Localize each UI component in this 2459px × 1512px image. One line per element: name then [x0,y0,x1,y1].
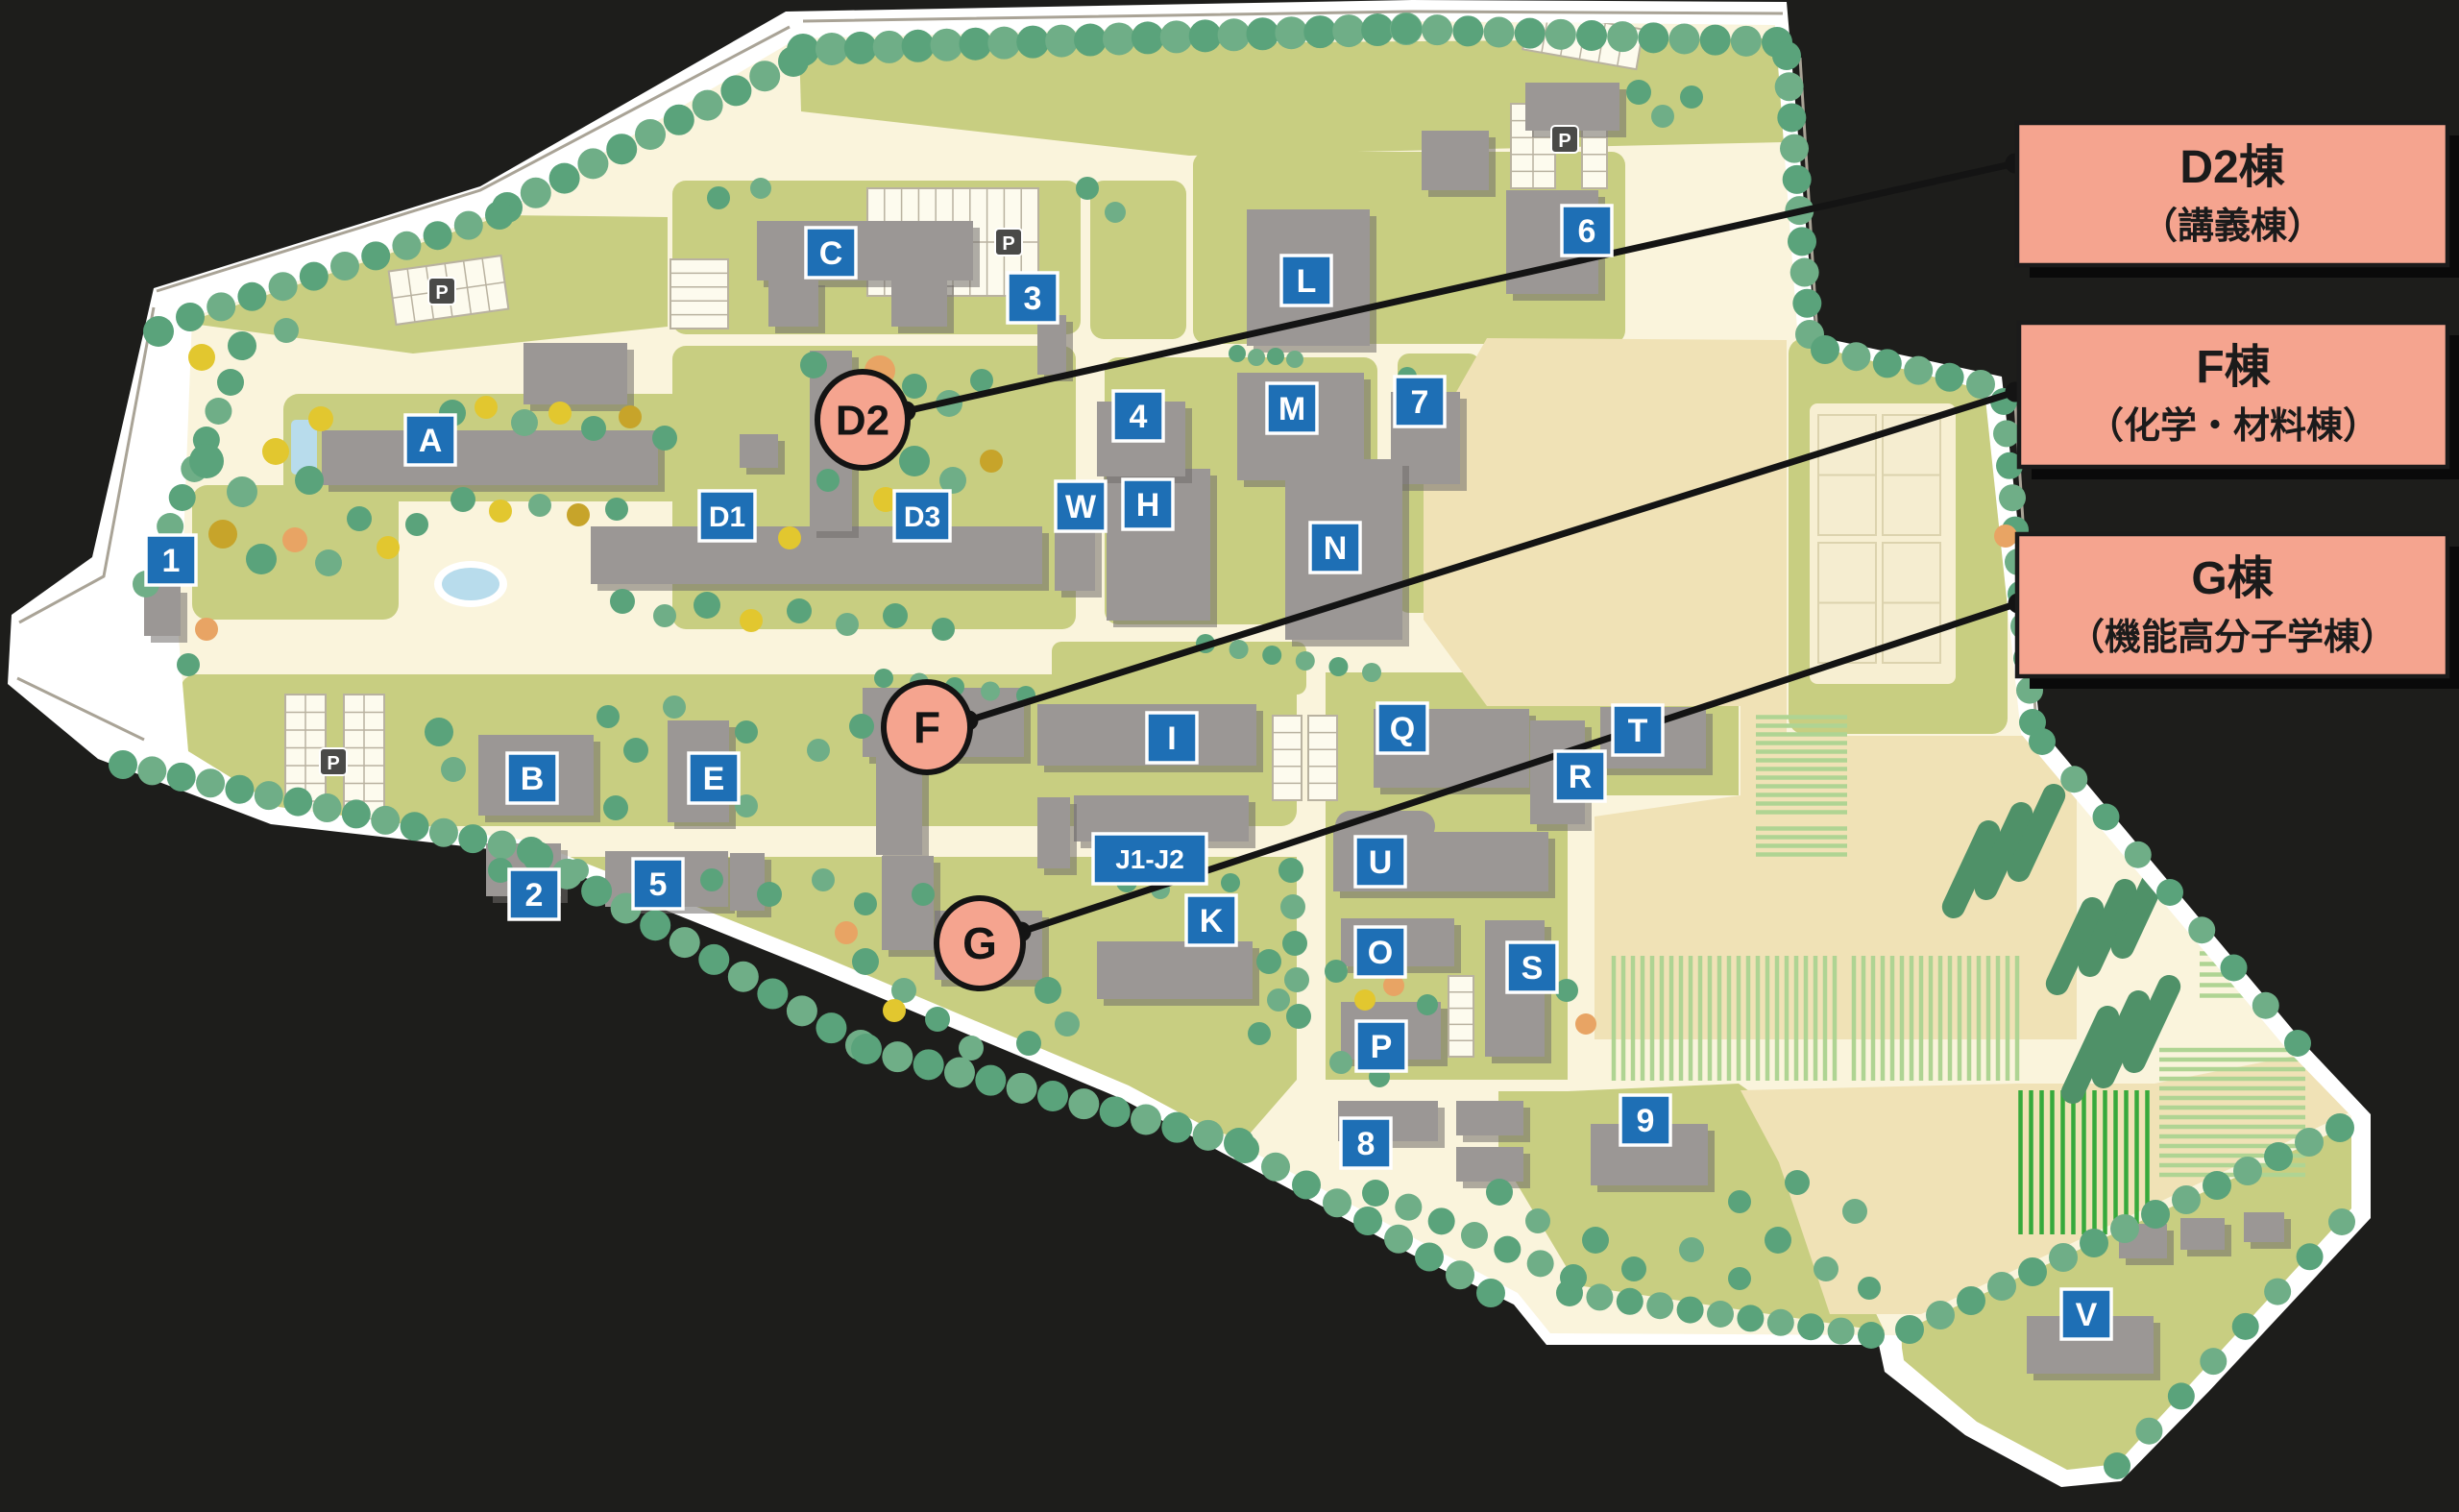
tree-icon [283,788,312,817]
tree-icon [1731,26,1762,57]
tree-icon [1353,1207,1382,1235]
building-badge-H[interactable]: H [1123,479,1173,529]
building-badge-1[interactable]: 1 [146,535,196,585]
tree-icon [1161,1112,1192,1143]
building-badge-P[interactable]: P [1356,1021,1406,1071]
building [1097,941,1253,999]
tree-icon [1074,24,1107,57]
tree-icon [2110,1214,2139,1243]
tree-icon [1037,1081,1068,1111]
building-badge-V[interactable]: V [2061,1289,2111,1339]
tree-icon [2221,955,2248,982]
tree-icon [1797,1313,1824,1340]
badge-label: C [819,235,843,272]
building-badge-U[interactable]: U [1355,837,1405,887]
tree-icon [707,186,730,209]
tree-icon [485,201,514,230]
tree-icon [1229,640,1249,659]
tree-icon [458,824,487,853]
building [757,221,973,280]
tree-icon [581,416,606,441]
parking-p-icon: P [320,748,347,775]
building-badge-O[interactable]: O [1355,927,1405,977]
tree-icon [169,484,196,511]
building-badge-D1[interactable]: D1 [699,491,755,541]
tree-icon [1646,1292,1673,1319]
tree-icon [450,487,475,512]
tree-icon [205,398,231,425]
tree-icon [1728,1190,1751,1213]
tree-icon [2029,728,2056,755]
building-badge-9[interactable]: 9 [1620,1095,1670,1145]
tree-icon [1707,1301,1734,1328]
tree-icon [1841,342,1870,371]
callout-title: D2棟 [2179,142,2285,193]
tree-icon [1100,1096,1131,1127]
marker-label: G [962,918,997,968]
tree-icon [1132,21,1164,54]
tree-icon [1292,1171,1321,1200]
tree-icon [2264,1142,2293,1171]
tree-icon [787,598,812,623]
tree-icon [425,718,453,746]
tree-icon [1651,105,1674,128]
parking-p-icon: P [1551,126,1578,153]
tree-icon [1994,524,2017,548]
tree-icon [392,232,421,260]
tree-icon [1484,17,1515,48]
tree-icon [567,503,590,526]
callout-title: G棟 [2191,553,2274,604]
tree-icon [1332,14,1365,47]
building-badge-C[interactable]: C [806,228,856,278]
tree-icon [1415,1243,1444,1272]
tree-icon [1842,1199,1867,1224]
tree-icon [429,818,458,847]
building-badge-2[interactable]: 2 [509,869,559,919]
tree-icon [1586,1283,1613,1310]
tree-icon [653,604,676,627]
tree-icon [1045,25,1078,58]
building-badge-T[interactable]: T [1613,705,1663,755]
tree-icon [361,241,390,270]
tree-icon [670,927,700,958]
badge-label: L [1297,263,1317,300]
tree-icon [899,446,930,476]
tree-icon [521,178,551,208]
tree-icon [2080,1229,2108,1257]
building-badge-S[interactable]: S [1507,942,1557,992]
tree-icon [1105,202,1126,223]
building [1456,1101,1523,1135]
map-canvas: PPPPD2FG123456789ABCD1D3EHIJ1-J2KLMNOPQR… [0,0,2459,1512]
building-badge-7[interactable]: 7 [1395,377,1445,427]
building-badge-J1-J2[interactable]: J1-J2 [1093,834,1206,884]
tree-icon [1783,165,1812,194]
tree-icon [1765,1227,1791,1254]
tree-icon [401,812,429,841]
tree-icon [176,303,205,331]
tree-icon [2252,992,2279,1019]
tree-icon [1494,1236,1521,1263]
tree-icon [488,831,517,860]
tree-icon [852,948,879,975]
tree-icon [902,30,935,62]
tree-icon [1525,1208,1550,1233]
tree-icon [1256,949,1281,974]
tree-icon [1785,1170,1810,1195]
tree-icon [1582,1227,1609,1254]
tree-icon [1417,994,1438,1015]
tree-icon [778,526,801,549]
tree-icon [816,469,840,492]
tree-icon [851,1034,882,1064]
tree-icon [237,282,266,311]
tree-icon [1737,1305,1764,1331]
tree-icon [424,221,452,250]
tree-icon [2093,804,2120,831]
tree-icon [577,148,608,179]
badge-label: A [419,423,443,459]
tree-icon [1428,1207,1455,1234]
badge-label: B [521,761,545,797]
tree-icon [757,979,788,1010]
tree-icon [1303,15,1336,48]
tree-icon [227,476,257,507]
tree-icon [1728,1267,1751,1290]
tree-icon [1323,1188,1351,1217]
badge-label: 9 [1637,1103,1655,1139]
tree-icon [208,520,237,549]
building [1037,797,1070,868]
building-badge-3[interactable]: 3 [1008,273,1058,323]
tree-icon [912,883,935,906]
tree-icon [1895,1315,1924,1344]
tree-icon [735,720,758,744]
tree-icon [566,859,589,882]
building-badge-E[interactable]: E [689,753,739,803]
callout-f[interactable]: F棟（化学・材料棟） [2019,323,2459,479]
tree-icon [1621,1256,1646,1281]
badge-label: H [1136,487,1160,524]
tree-icon [441,757,466,782]
building [768,279,818,327]
building-badge-L[interactable]: L [1281,256,1331,305]
tree-icon [1576,20,1607,51]
badge-label: S [1522,950,1544,987]
tree-icon [2156,879,2183,906]
tree-icon [849,714,874,739]
building-badge-I[interactable]: I [1147,713,1197,763]
tree-icon [2172,1185,2201,1214]
building-badge-4[interactable]: 4 [1113,391,1163,441]
building-badge-D3[interactable]: D3 [894,491,950,541]
tree-icon [1218,18,1251,51]
building-badge-N[interactable]: N [1310,523,1360,573]
tree-icon [1384,1225,1413,1254]
tree-icon [664,105,694,135]
tree-icon [694,592,720,619]
tree-icon [1957,1286,1985,1315]
tree-icon [693,90,723,121]
tree-icon [274,318,299,343]
marker-label: F [913,702,940,752]
building-badge-A[interactable]: A [405,415,455,465]
tree-icon [1936,363,1964,392]
tree-icon [1248,349,1265,366]
tree-icon [1422,14,1452,45]
tree-icon [1160,20,1193,53]
tree-icon [932,618,955,641]
badge-label: 2 [525,877,544,914]
tree-icon [1395,1194,1422,1221]
tree-icon [757,882,782,907]
marker-circle-F[interactable]: F [884,682,970,772]
tree-icon [1103,22,1135,55]
callout-subtitle: （機能高分子学棟） [2068,617,2397,658]
tree-icon [959,1036,984,1061]
tree-icon [1391,13,1422,44]
tree-icon [313,793,342,822]
svg-text:P: P [1002,233,1014,255]
tree-icon [1772,41,1801,70]
badge-label: I [1167,720,1176,757]
tree-icon [1858,1322,1885,1349]
marker-circle-G[interactable]: G [937,898,1023,988]
tree-icon [1527,1250,1554,1277]
tree-icon [883,603,908,628]
badge-label: 8 [1357,1126,1376,1162]
tree-icon [188,344,215,371]
tree-icon [1193,1120,1224,1151]
tree-icon [1275,16,1307,49]
badge-label: D1 [709,501,745,533]
tree-icon [511,409,538,436]
building [1525,83,1619,131]
tree-icon [873,31,906,63]
tree-icon [1007,1073,1037,1104]
tree-icon [1999,484,2026,511]
tree-icon [1286,351,1303,368]
badge-label: W [1065,489,1097,525]
tree-icon [1229,345,1246,362]
badge-label: 5 [649,866,668,903]
tree-icon [1788,227,1816,256]
tree-icon [1361,13,1394,46]
tree-icon [1904,356,1933,385]
tree-icon [981,682,1000,701]
tree-icon [137,756,166,785]
tree-icon [2060,766,2087,793]
tree-icon [902,374,927,399]
tree-icon [1767,1309,1794,1336]
tree-icon [1780,134,1809,163]
tree-icon [925,1007,950,1032]
svg-text:P: P [1558,131,1570,152]
badge-label: 3 [1024,280,1042,317]
tree-icon [217,369,244,396]
tree-icon [663,695,686,719]
tree-icon [1677,1297,1704,1324]
building-badge-5[interactable]: 5 [633,859,683,909]
tree-icon [1131,1105,1161,1135]
tree-icon [246,544,277,574]
tree-icon [1261,1153,1290,1182]
tree-icon [2232,1313,2259,1340]
tree-icon [1248,1022,1271,1045]
tree-icon [750,178,771,199]
tree-icon [2233,1157,2262,1185]
tree-icon [1262,646,1281,665]
building [1055,524,1095,591]
callout-d2[interactable]: D2棟（講義棟） [2017,123,2459,278]
tree-icon [1560,1264,1587,1291]
tree-icon [1607,21,1638,52]
tree-icon [835,921,858,944]
marker-circle-D2[interactable]: D2 [817,372,908,468]
tree-icon [720,75,751,106]
tree-icon [228,331,256,360]
badge-label: 7 [1411,384,1429,421]
svg-text:P: P [327,753,339,774]
tree-icon [1775,72,1804,101]
tree-icon [2049,1243,2078,1272]
callout-title: F棟 [2196,342,2271,393]
tree-icon [255,781,283,810]
tree-icon [1966,370,1995,399]
tree-icon [1679,1237,1704,1262]
tree-icon [1076,177,1099,200]
tree-icon [2168,1382,2195,1409]
badge-label: U [1369,844,1393,881]
tree-icon [778,46,809,77]
tree-icon [282,527,307,552]
tree-icon [1328,657,1348,676]
building [730,853,765,911]
tree-icon [883,999,906,1022]
tree-icon [1700,25,1731,56]
building-badge-6[interactable]: 6 [1562,206,1612,256]
tree-icon [623,738,648,763]
tree-icon [2188,916,2215,943]
tree-icon [844,32,877,64]
tree-icon [1055,1012,1080,1036]
tree-icon [619,405,642,428]
tree-icon [581,876,612,907]
building-badge-M[interactable]: M [1267,383,1317,433]
building-badge-B[interactable]: B [507,753,557,803]
building-badge-K[interactable]: K [1186,895,1236,945]
tree-icon [1446,1260,1474,1289]
tree-icon [2200,1348,2227,1375]
tree-icon [931,29,963,61]
tree-icon [2018,1257,2047,1286]
badge-label: R [1569,759,1593,795]
tree-icon [959,28,991,61]
tree-icon [347,506,372,531]
tree-icon [610,589,635,614]
tree-icon [605,498,628,521]
tree-icon [2328,1208,2355,1235]
tree-icon [330,252,359,280]
tree-icon [549,163,580,194]
tree-icon [2264,1279,2291,1305]
tree-icon [596,705,620,728]
building [2244,1212,2284,1242]
tree-icon [1221,873,1240,892]
tree-icon [800,352,827,378]
tree-icon [1926,1301,1955,1329]
building [322,430,658,485]
tree-icon [2203,1171,2231,1200]
tree-icon [1284,967,1309,992]
tree-icon [807,739,830,762]
tree-icon [2284,1030,2311,1057]
tree-icon [1858,1277,1881,1300]
tree-icon [1546,19,1576,50]
building-badge-R[interactable]: R [1555,751,1605,801]
tree-icon [2104,1452,2130,1479]
tree-icon [1993,420,2020,447]
tree-icon [1476,1279,1505,1307]
tree-icon [167,763,196,792]
tree-icon [1626,80,1651,105]
tree-icon [728,962,759,992]
tree-icon [177,653,200,676]
tree-icon [2295,1128,2324,1157]
tree-icon [1354,989,1376,1011]
tree-icon [1282,931,1307,956]
tree-icon [1068,1088,1099,1119]
building-badge-8[interactable]: 8 [1341,1118,1391,1168]
badge-label: E [703,761,725,797]
tree-icon [1461,1222,1488,1249]
tree-icon [1296,651,1315,671]
tree-icon [189,444,224,478]
tree-icon [1267,348,1284,365]
tree-icon [1790,258,1819,287]
tree-icon [371,806,400,835]
tree-icon [1873,349,1902,378]
tree-icon [603,795,628,820]
tree-icon [315,549,342,576]
tree-icon [812,868,835,891]
badge-label: D3 [904,501,940,533]
tennis-courts [1810,403,1956,684]
tree-icon [377,536,400,559]
tree-icon [1814,1256,1838,1281]
tree-icon [1280,894,1305,919]
building-badge-W[interactable]: W [1056,481,1106,531]
tree-icon [1230,1134,1259,1163]
tree-icon [109,750,137,779]
tree-icon [854,892,877,915]
tree-icon [975,1065,1006,1096]
tree-icon [342,799,371,828]
tree-icon [143,316,174,347]
callout-g[interactable]: G棟（機能高分子学棟） [2017,534,2459,689]
badge-label: M [1278,391,1305,427]
building-badge-Q[interactable]: Q [1377,703,1427,753]
badge-label: K [1200,903,1224,939]
tree-icon [1016,26,1049,59]
tree-icon [405,513,428,536]
tree-icon [2325,1113,2354,1142]
badge-label: 1 [162,543,181,579]
svg-text:P: P [435,282,448,304]
parking-p-icon: P [428,278,455,305]
tree-icon [225,775,254,804]
